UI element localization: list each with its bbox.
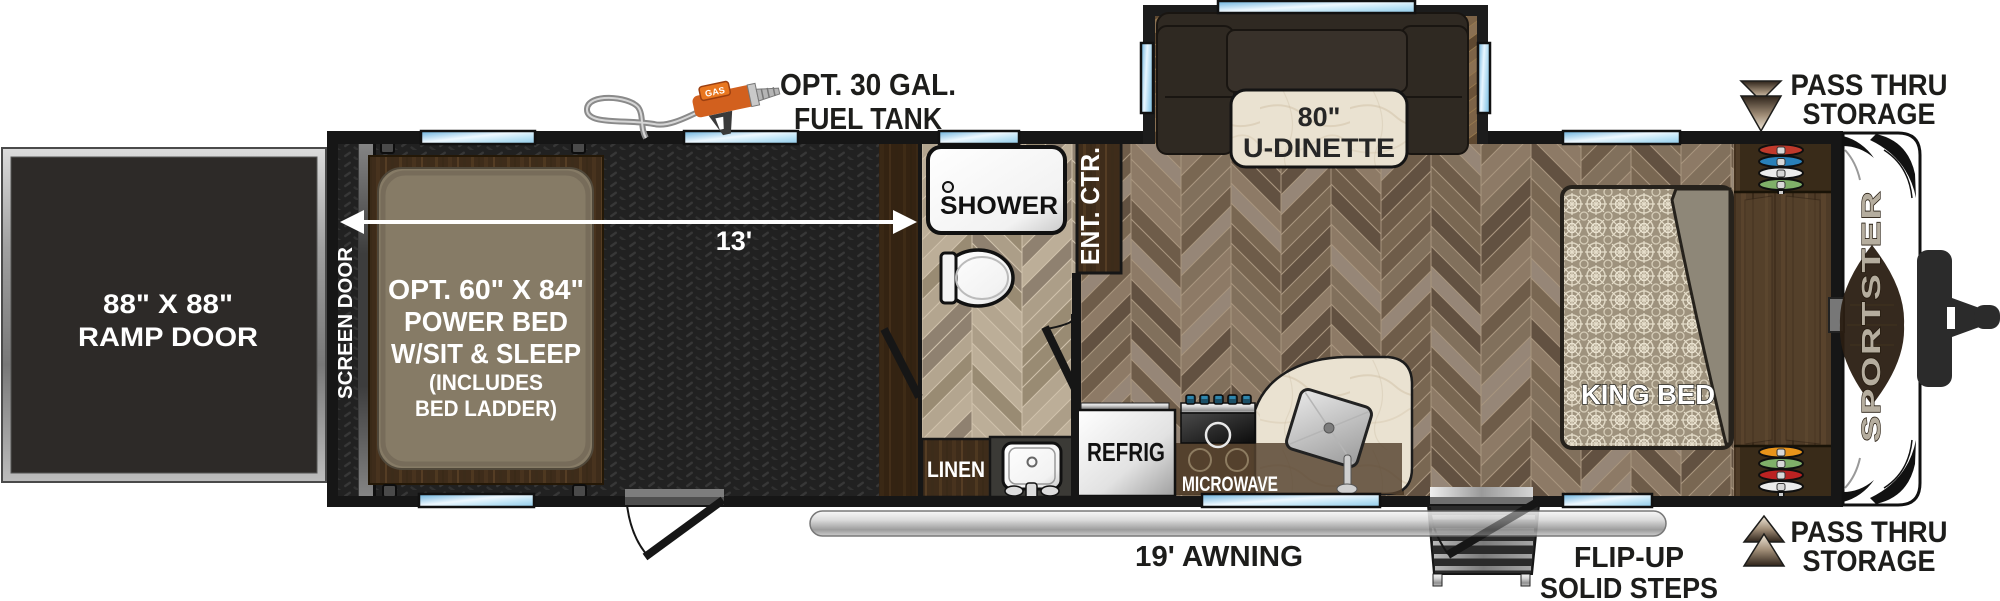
svg-text:FUEL TANK: FUEL TANK xyxy=(794,101,943,136)
svg-text:STORAGE: STORAGE xyxy=(1803,545,1936,578)
svg-text:13': 13' xyxy=(716,226,752,256)
svg-text:SHOWER: SHOWER xyxy=(940,192,1058,220)
svg-text:STORAGE: STORAGE xyxy=(1803,98,1936,131)
svg-text:88" X 88": 88" X 88" xyxy=(103,289,233,319)
svg-text:BED LADDER): BED LADDER) xyxy=(415,396,557,421)
svg-text:FLIP-UP: FLIP-UP xyxy=(1574,542,1684,574)
svg-text:RAMP DOOR: RAMP DOOR xyxy=(78,322,258,352)
svg-text:SCREEN DOOR: SCREEN DOOR xyxy=(335,246,357,399)
svg-text:OPT. 30 GAL.: OPT. 30 GAL. xyxy=(780,67,956,102)
svg-text:80": 80" xyxy=(1298,102,1341,132)
svg-text:REFRIG: REFRIG xyxy=(1087,437,1165,467)
svg-text:W/SIT & SLEEP: W/SIT & SLEEP xyxy=(391,338,581,369)
svg-text:19' AWNING: 19' AWNING xyxy=(1135,541,1303,573)
svg-text:(INCLUDES: (INCLUDES xyxy=(429,370,543,395)
svg-text:LINEN: LINEN xyxy=(927,457,985,482)
svg-text:OPT. 60" X 84": OPT. 60" X 84" xyxy=(388,274,584,305)
svg-text:ENT. CTR.: ENT. CTR. xyxy=(1075,147,1105,265)
svg-text:U-DINETTE: U-DINETTE xyxy=(1243,133,1395,163)
svg-text:KING BED: KING BED xyxy=(1581,379,1715,410)
svg-text:POWER BED: POWER BED xyxy=(404,306,568,337)
svg-text:MICROWAVE: MICROWAVE xyxy=(1182,473,1278,496)
svg-text:SOLID STEPS: SOLID STEPS xyxy=(1540,573,1718,601)
svg-text:SPORTSTER: SPORTSTER xyxy=(1856,190,1886,442)
